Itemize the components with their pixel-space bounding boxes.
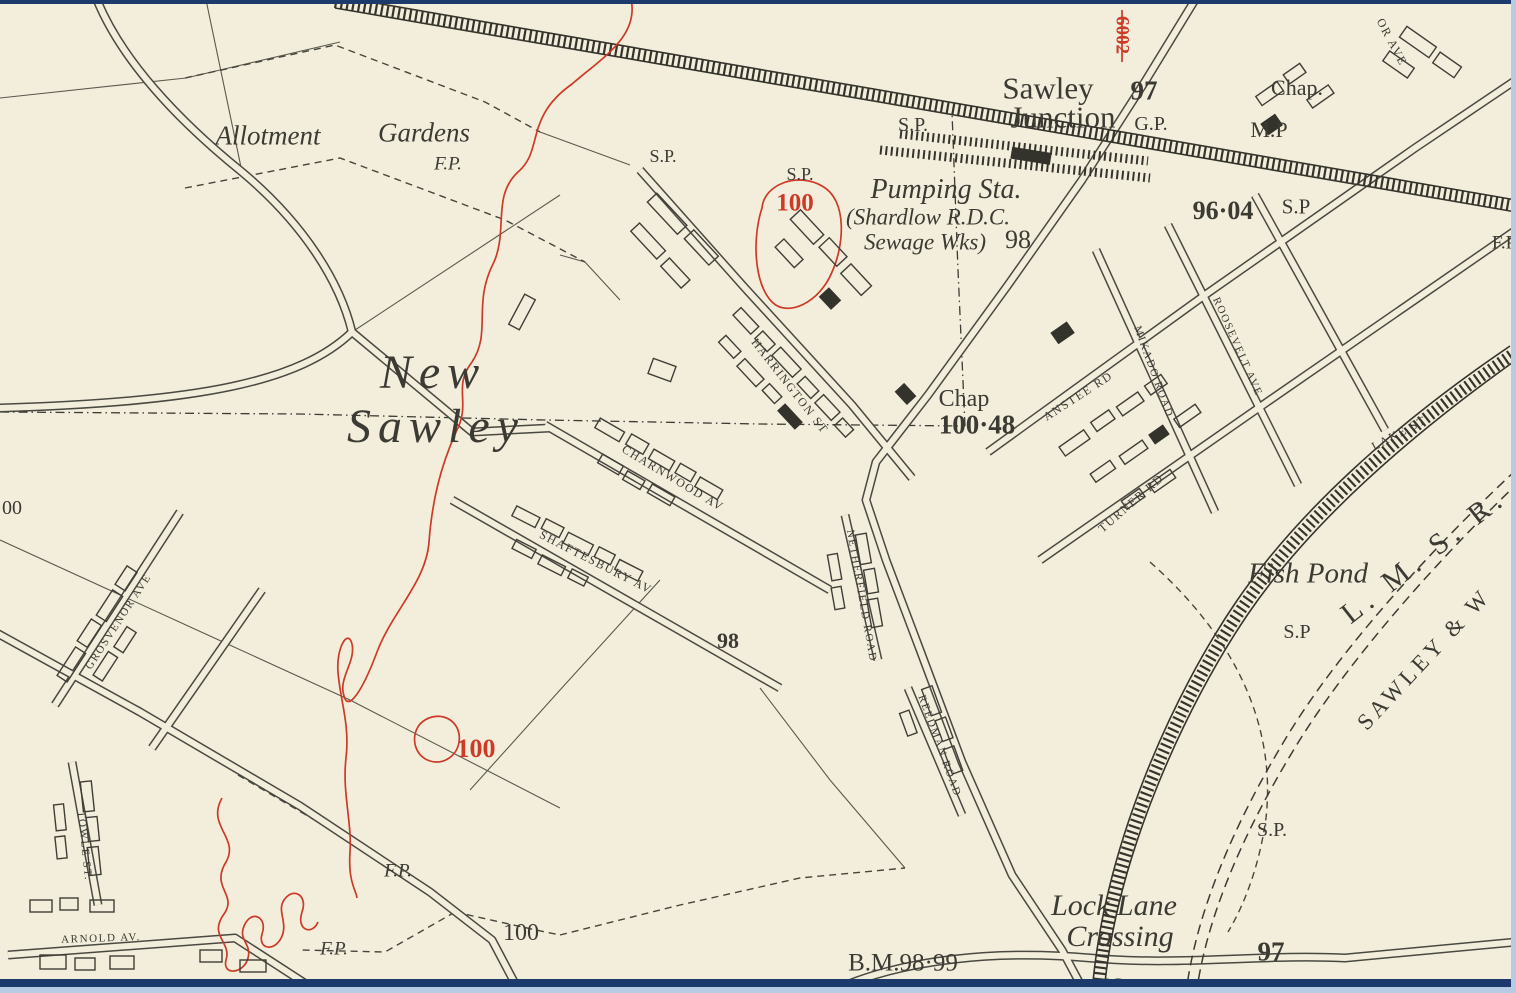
new-sawley-line1: New bbox=[380, 349, 486, 397]
red-number-6002: 6002 bbox=[1113, 16, 1132, 54]
labels-layer: AllotmentGardensF.P.S.P.S.P.S.P.SawleyJu… bbox=[0, 0, 1516, 993]
gp-junction: G.P. bbox=[1134, 114, 1167, 134]
sp-junction-west: S.P. bbox=[898, 115, 928, 135]
new-sawley-line2: Sawley bbox=[347, 403, 525, 451]
spot-height-98-pumping: 98 bbox=[1005, 227, 1031, 253]
sp-curve: S.P. bbox=[1257, 820, 1287, 840]
frame-bottom-light-border bbox=[0, 987, 1516, 993]
lake-st: LAKE ST bbox=[1370, 414, 1429, 453]
spot-height-100-path: 100 bbox=[503, 921, 539, 945]
spot-height-98-south: 98 bbox=[717, 630, 739, 652]
sewage-wks: Sewage Wks) bbox=[864, 231, 986, 254]
roosevelt-ave: ROOSEVELT AVE bbox=[1210, 296, 1264, 398]
spot-height-97-junction: 97 bbox=[1131, 78, 1158, 105]
arnold-av: ARNOLD AV. bbox=[61, 932, 141, 946]
lock-lane-line2: Crossing bbox=[1066, 922, 1173, 952]
netherfield-road: NETHERFIELD ROAD bbox=[844, 529, 878, 663]
pumping-sta: Pumping Sta. bbox=[871, 176, 1022, 204]
grosvenor-ave: GROSVENOR AVE bbox=[84, 572, 154, 671]
fp-bottom: F.P. bbox=[320, 940, 348, 959]
sp-pumping-north: S.P. bbox=[786, 165, 813, 183]
mikado-road: MIKADO ROAD bbox=[1131, 325, 1174, 420]
chap-south: Chap bbox=[939, 387, 990, 411]
shaftesbury-av: SHAFTESBURY AV bbox=[538, 528, 655, 595]
sp-fishpond: S.P bbox=[1283, 622, 1310, 642]
frame-bottom-border bbox=[0, 979, 1516, 987]
harrington-st: HARRINGTON ST bbox=[749, 336, 830, 436]
fish-pond: Fish Pond bbox=[1248, 560, 1368, 589]
frame-right-border bbox=[1511, 0, 1516, 993]
avenue-partial: OR AVE bbox=[1375, 16, 1410, 67]
sp-9604: S.P bbox=[1282, 197, 1311, 218]
charnwood-av: CHARNWOOD AV bbox=[620, 443, 726, 513]
anstee-rd: ANSTEE RD bbox=[1041, 369, 1115, 423]
spot-height-9604: 96·04 bbox=[1193, 198, 1254, 224]
frame-top-border bbox=[0, 0, 1516, 4]
spot-height-partial-left: 00 bbox=[2, 498, 22, 518]
fp-mid: F.P. bbox=[384, 862, 412, 881]
lock-lane-line1: Lock Lane bbox=[1051, 891, 1177, 921]
allotment-label: Allotment bbox=[216, 123, 321, 150]
contour-100-west: 100 bbox=[457, 736, 496, 762]
map-viewer: AllotmentGardensF.P.S.P.S.P.S.P.SawleyJu… bbox=[0, 0, 1516, 993]
mp-north: M.P bbox=[1250, 119, 1287, 141]
turner-rd: TURNER RD bbox=[1096, 472, 1166, 535]
chap-north: Chap. bbox=[1271, 77, 1323, 99]
sawley-junction-line2: Junction bbox=[1010, 102, 1115, 133]
spot-height-97-south: 97 bbox=[1258, 939, 1285, 966]
shardlow-rdc: (Shardlow R.D.C. bbox=[846, 206, 1010, 229]
gardens-label: Gardens bbox=[378, 120, 470, 147]
contour-100-ring: 100 bbox=[776, 191, 814, 216]
benchmark-9899: B.M.98·99 bbox=[848, 951, 958, 976]
fp-allotment: F.P. bbox=[434, 155, 462, 174]
sp-rail-left: S.P. bbox=[649, 147, 676, 165]
reedman-road: REEDMAN ROAD bbox=[915, 694, 962, 799]
towle-st: TOWLE ST. bbox=[75, 811, 93, 882]
spot-height-10048: 100·48 bbox=[939, 412, 1016, 439]
